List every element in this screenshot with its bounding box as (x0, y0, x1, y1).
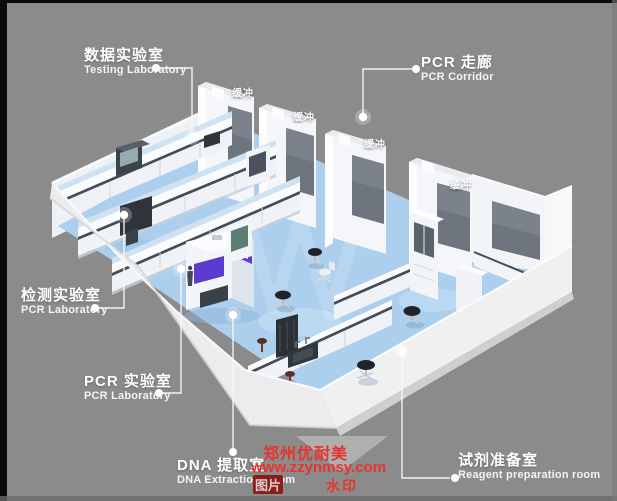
buffer-room-tag: 缓冲 (364, 136, 386, 151)
label-testing-laboratory: 数据实验室 Testing Laboratory (84, 47, 186, 77)
left-border-strip (0, 0, 7, 501)
label-en: Reagent preparation room (458, 469, 600, 482)
watermark-stamp-box: 图片 (253, 475, 283, 494)
biosafety-cabinet-2 (228, 219, 252, 263)
watermark-stamp-text: 图片 (255, 478, 281, 493)
label-zh: PCR 走廊 (421, 54, 494, 71)
label-reagent-preparation-room: 试剂准备室 Reagent preparation room (458, 452, 600, 482)
lab-floorplan-infographic: 数据实验室 Testing Laboratory PCR 走廊 PCR Corr… (0, 0, 617, 501)
label-en: Testing Laboratory (84, 64, 186, 77)
watermark-url: www.zzynmsy.com (251, 459, 386, 476)
label-zh: PCR 实验室 (84, 373, 172, 390)
label-zh: 试剂准备室 (458, 452, 600, 469)
watermark-print-text: 水印 (326, 476, 358, 496)
label-zh: 数据实验室 (84, 47, 186, 64)
label-pcr-corridor: PCR 走廊 PCR Corridor (421, 54, 494, 84)
right-border-strip (612, 0, 617, 501)
biosafety-cabinet-1 (246, 145, 270, 187)
label-pcr-laboratory: PCR 实验室 PCR Laboratory (84, 373, 172, 403)
top-border-strip (0, 0, 617, 3)
buffer-room-tag: 缓冲 (450, 177, 472, 192)
buffer-room-tag: 缓冲 (232, 85, 254, 100)
label-en: PCR Laboratory (21, 304, 108, 317)
label-en: PCR Corridor (421, 71, 494, 84)
bottom-border-strip (0, 496, 617, 501)
label-zh: 检测实验室 (21, 287, 108, 304)
buffer-room-tag: 缓冲 (293, 109, 315, 124)
label-en: PCR Laboratory (84, 390, 172, 403)
label-detection-laboratory: 检测实验室 PCR Laboratory (21, 287, 108, 317)
watermark-stamp: 图片 (253, 475, 284, 494)
